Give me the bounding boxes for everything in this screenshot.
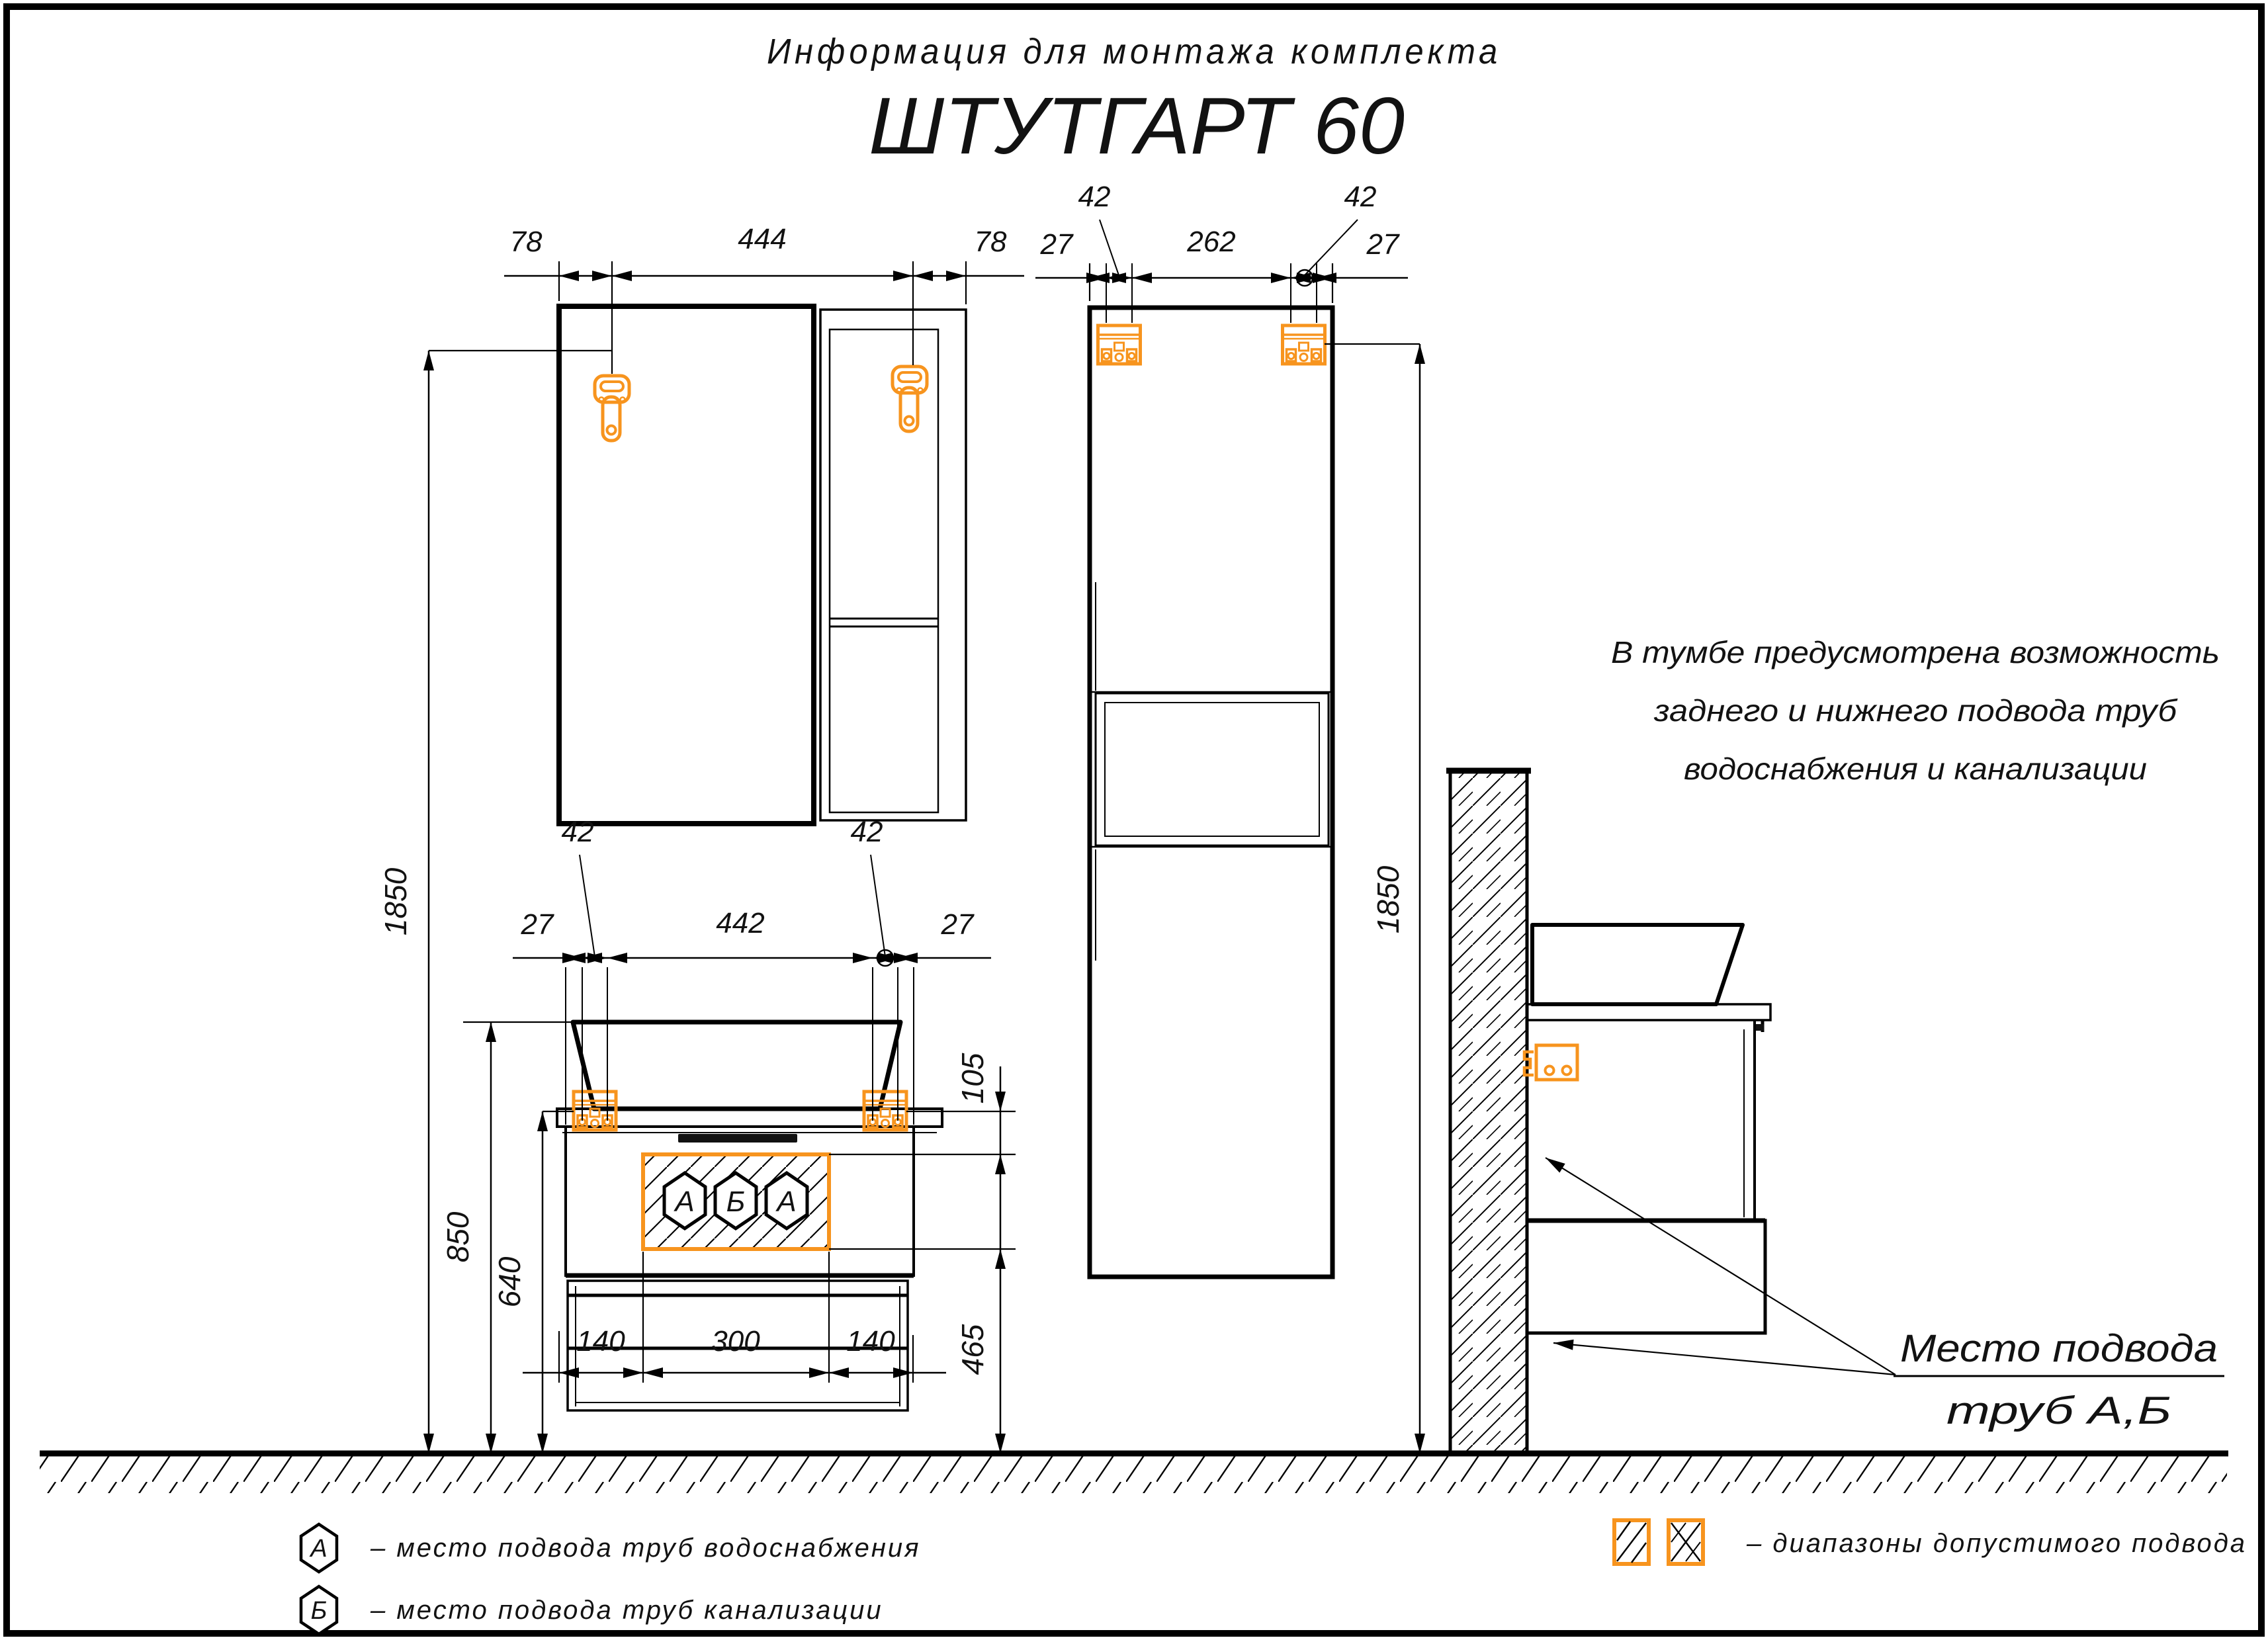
port-symbol-water-2: А (766, 1173, 807, 1229)
wall-hatch (1450, 771, 1527, 1453)
legend-water-label: – место подвода труб водоснабжения (370, 1533, 920, 1563)
dim-442: 442 (716, 907, 764, 939)
note-block: В тумбе предусмотрена возможность заднег… (1611, 635, 2220, 786)
mirror-door (559, 306, 814, 824)
dim-850: 850 (441, 1211, 475, 1262)
tall-cabinet-front-view (1090, 308, 1332, 1277)
hatch-square-icon (1614, 1520, 1649, 1564)
legend-sewer-label: – место подвода труб канализации (370, 1596, 883, 1625)
dim-78-right: 78 (975, 226, 1007, 258)
svg-text:А: А (775, 1186, 796, 1218)
sink-side-profile (1532, 925, 1743, 1004)
dim-444: 444 (738, 223, 786, 255)
open-niche (1096, 693, 1329, 845)
dim-1850-right: 1850 (1371, 865, 1405, 933)
side-bracket (1524, 1045, 1577, 1080)
callout-line1: Место подвода (1900, 1327, 2218, 1370)
page-border (7, 7, 2261, 1633)
dim-42-right-tall: 42 (1344, 181, 1377, 213)
dim-42-left: 42 (562, 816, 594, 848)
cross-hatch-square-icon (1669, 1520, 1703, 1564)
vessel-sink (573, 1022, 900, 1109)
callout-line2: труб А,Б (1946, 1389, 2171, 1432)
dim-640: 640 (492, 1256, 527, 1307)
height-dimension-640: 640 (492, 1111, 574, 1453)
drawing-canvas: Информация для монтажа комплекта ШТУТГАР… (0, 0, 2268, 1640)
dim-465: 465 (955, 1324, 990, 1375)
vanity-bottom-dimensions: 140 300 140 (523, 1252, 946, 1383)
dim-300: 300 (711, 1325, 760, 1358)
legend-sewer-row: Б – место подвода труб канализации (301, 1586, 883, 1634)
note-line-3: водоснабжения и канализации (1684, 752, 2147, 786)
installation-drawing-page: Информация для монтажа комплекта ШТУТГАР… (0, 0, 2268, 1640)
dim-140-left: 140 (576, 1325, 625, 1358)
title-block: Информация для монтажа комплекта ШТУТГАР… (767, 32, 1501, 171)
dim-42-left-tall: 42 (1078, 181, 1111, 213)
pipe-callout: Место подвода труб А,Б (1543, 1153, 2224, 1432)
dim-78-left: 78 (510, 226, 543, 258)
legend-left: А – место подвода труб водоснабжения Б –… (301, 1524, 920, 1634)
page-title: Информация для монтажа комплекта (767, 32, 1501, 71)
dim-1850-left: 1850 (378, 867, 413, 935)
tall-top-dimensions: 27 42 262 42 27 (1035, 181, 1408, 323)
dim-140-right: 140 (846, 1325, 895, 1358)
dim-27-right-tall: 27 (1366, 228, 1400, 261)
connection-zone: А Б А (643, 1154, 829, 1249)
dim-27-left-tall: 27 (1040, 228, 1074, 261)
dim-27-left: 27 (521, 908, 554, 941)
dim-27-right: 27 (941, 908, 975, 941)
product-name: ШТУТГАРТ 60 (869, 81, 1405, 171)
dim-105: 105 (955, 1053, 990, 1103)
floor-hatch (40, 1456, 2227, 1493)
legend-right: – диапазоны допустимого подвода (1614, 1520, 2247, 1564)
port-symbol-water-1: А (664, 1173, 705, 1229)
svg-text:А: А (309, 1535, 327, 1563)
legend-range-label: – диапазоны допустимого подвода (1746, 1529, 2247, 1558)
note-line-2: заднего и нижнего подвода труб (1653, 693, 2178, 728)
legend-water-row: А – место подвода труб водоснабжения (301, 1524, 920, 1572)
svg-text:Б: Б (311, 1597, 327, 1625)
drawer-side-profile (1527, 1221, 1765, 1333)
height-dimension-1850-right: 1850 (1325, 344, 1425, 1453)
svg-text:А: А (673, 1186, 694, 1218)
countertop-side (1527, 1004, 1770, 1020)
height-dimension-850: 850 (441, 1022, 573, 1453)
svg-text:Б: Б (726, 1186, 746, 1218)
drawer-handle (678, 1134, 797, 1143)
dim-262: 262 (1186, 226, 1235, 258)
side-view: Место подвода труб А,Б (1446, 771, 2224, 1453)
mirror-cabinet-front-view (559, 306, 966, 824)
port-symbol-sewer: Б (715, 1173, 756, 1229)
dimension-105-465: 105 465 (829, 1053, 1016, 1453)
floor (40, 1453, 2228, 1493)
note-line-1: В тумбе предусмотрена возможность (1611, 635, 2220, 669)
dim-42-right: 42 (851, 816, 883, 848)
